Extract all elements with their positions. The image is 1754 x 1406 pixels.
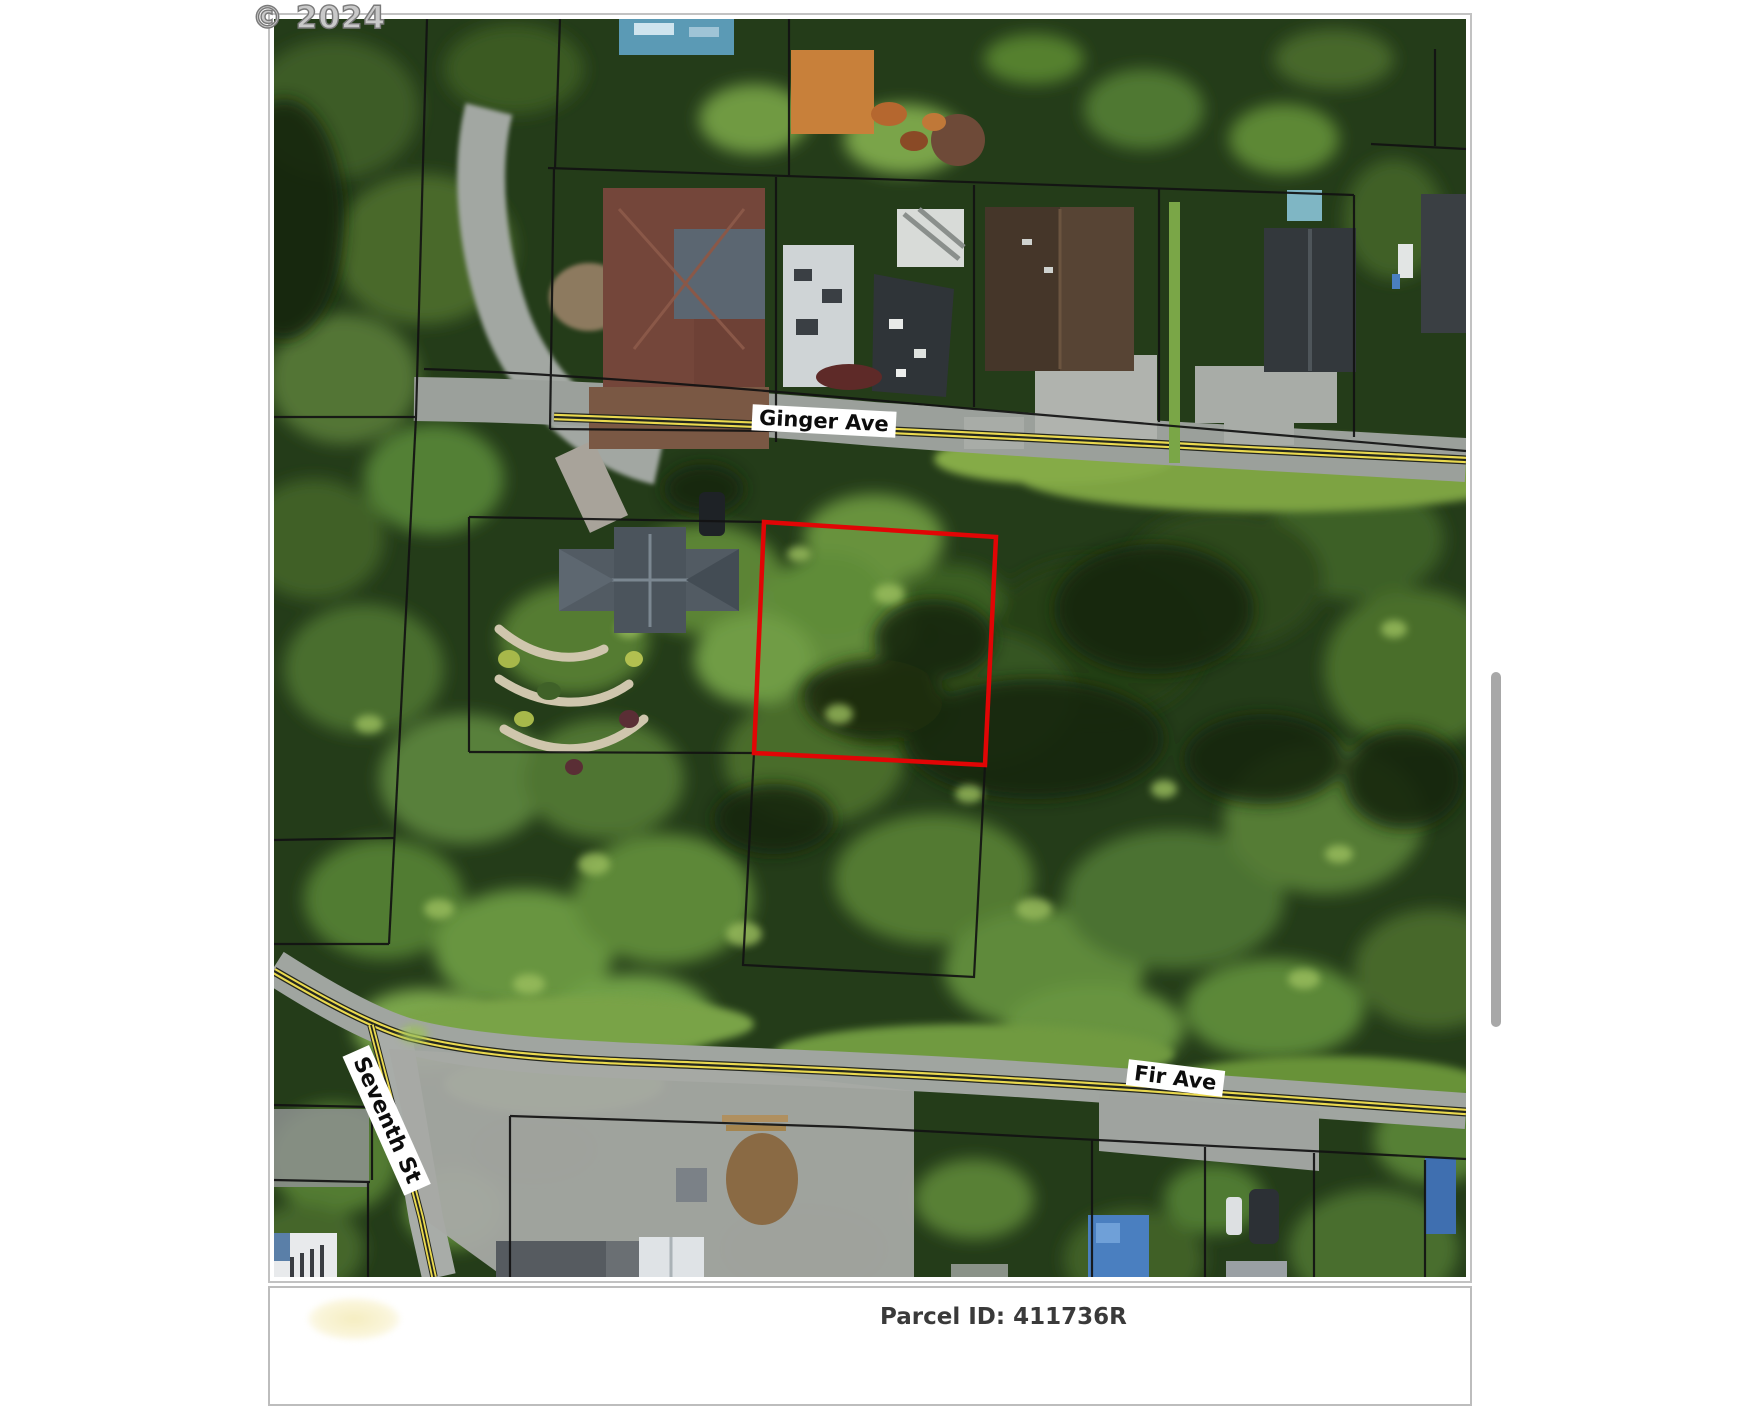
vertical-scrollbar-thumb[interactable] xyxy=(1491,672,1501,1027)
map-card: Ginger Ave Fir Ave Seventh St xyxy=(268,13,1472,1283)
page: { "watermark": { "text": "© 2024" }, "ma… xyxy=(0,0,1754,1316)
county-logo xyxy=(308,1298,400,1340)
parcel-details-card: Parcel ID: 411736R xyxy=(268,1286,1472,1406)
map-viewport[interactable]: Ginger Ave Fir Ave Seventh St xyxy=(274,19,1466,1277)
parcel-id-text: Parcel ID: 411736R xyxy=(880,1304,1127,1330)
copyright-watermark: © 2024 xyxy=(252,0,386,36)
aerial-imagery xyxy=(274,19,1466,1277)
